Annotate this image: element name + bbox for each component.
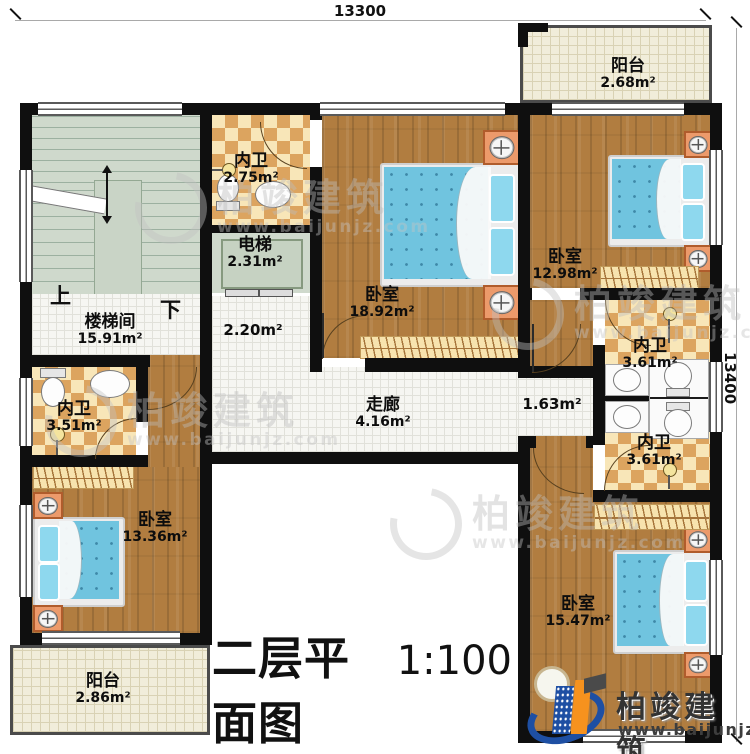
wall — [580, 288, 722, 300]
pillow — [684, 604, 708, 646]
dimension-tick — [730, 16, 742, 28]
light-fixture-stem — [668, 475, 670, 489]
window — [709, 560, 723, 655]
room-label-bath-left: 内卫3.51m² — [34, 400, 114, 435]
watermark-logo-icon — [376, 474, 476, 574]
nightstand — [483, 130, 520, 165]
wall — [205, 225, 310, 233]
dimension-right-value: 13400 — [721, 352, 739, 432]
wardrobe-rail — [34, 478, 133, 480]
dimension-tick — [9, 8, 21, 20]
lamp-icon — [689, 656, 708, 673]
room-label-stairwell: 楼梯间15.91m² — [60, 313, 160, 348]
pillow — [681, 163, 705, 201]
pillow — [489, 174, 515, 223]
wardrobe — [360, 336, 520, 359]
plan-scale: 1:100 — [397, 638, 512, 684]
nightstand — [684, 527, 712, 553]
title-block: 二层平面图 1:100 本层建筑面积: 117.86m² 层高: 3.2m — [212, 622, 512, 754]
sink — [613, 405, 641, 429]
wall — [593, 490, 710, 502]
brand-name: 柏竣建筑 — [616, 682, 750, 754]
sink — [90, 370, 130, 398]
sink-counter — [605, 401, 649, 433]
wall — [593, 345, 605, 395]
floor-plan: 13300 13400 — [0, 0, 750, 754]
wall — [200, 103, 212, 367]
room-label-balcony-top-right: 阳台2.68m² — [578, 57, 678, 92]
pillow — [38, 563, 60, 601]
wall — [518, 23, 528, 47]
wall — [200, 452, 530, 464]
wardrobe — [594, 504, 710, 530]
page-title: 二层平面图 — [212, 622, 385, 752]
lamp-icon — [38, 609, 58, 627]
dimension-top-value: 13300 — [300, 2, 420, 20]
wall — [365, 358, 518, 372]
nightstand — [684, 652, 712, 678]
lamp-icon — [689, 249, 708, 267]
bed-sheet — [456, 167, 491, 279]
nightstand — [33, 492, 63, 519]
door-leaf — [322, 313, 324, 358]
room-label-bedroom-bottom-left: 卧室13.36m² — [105, 511, 205, 546]
room-label-corridor: 走廊4.16m² — [333, 396, 433, 431]
nightstand — [483, 285, 520, 320]
wall — [518, 300, 530, 378]
bed-sheet — [659, 554, 684, 646]
room-label-bath-upper: 内卫2.75m² — [211, 152, 291, 187]
bed — [380, 163, 521, 287]
arrow-head-icon — [102, 165, 112, 173]
brand-logo: 柏竣建筑 www.baijunjz.com — [524, 676, 750, 748]
stair-flight — [140, 183, 200, 295]
pillow — [681, 203, 705, 241]
lamp-icon — [689, 531, 708, 548]
window — [320, 102, 505, 116]
wall — [530, 436, 536, 448]
room-label-bedroom-center: 卧室18.92m² — [332, 286, 432, 321]
window — [19, 170, 33, 282]
stair-direction-arrow — [106, 172, 108, 216]
arrow-head-icon — [102, 216, 112, 224]
wardrobe-rail — [595, 517, 709, 519]
window — [19, 505, 33, 597]
toilet-tank — [666, 388, 690, 397]
window — [709, 362, 723, 432]
pillow — [684, 560, 708, 602]
door-leaf — [532, 324, 534, 372]
pillow — [38, 525, 60, 563]
stair-up-label: 上 — [50, 280, 71, 310]
lamp-icon — [489, 291, 514, 315]
wall — [136, 367, 148, 422]
toilet-tank — [216, 201, 240, 211]
lamp-icon — [489, 136, 514, 160]
room-label-passage-nook: 1.63m² — [512, 396, 592, 413]
nightstand — [33, 605, 63, 632]
wall — [20, 355, 150, 367]
room-label-elevator: 电梯2.31m² — [215, 236, 295, 271]
bed — [608, 155, 712, 247]
pillow — [489, 227, 515, 276]
window — [42, 631, 180, 645]
window — [709, 150, 723, 245]
stair-down-label: 下 — [160, 294, 181, 324]
wardrobe-rail — [361, 348, 519, 350]
wall — [310, 167, 322, 372]
room-label-bedroom-top-right: 卧室12.98m² — [515, 248, 615, 283]
wall — [586, 436, 593, 448]
brand-url: www.baijunjz.com — [618, 720, 750, 739]
room-label-elevator-lobby: 2.20m² — [213, 322, 293, 339]
staircase — [32, 115, 200, 295]
nightstand — [684, 131, 712, 158]
room-label-bedroom-bottom-right: 卧室15.47m² — [528, 595, 628, 630]
room-label-bath-right-lower: 内卫3.61m² — [614, 434, 694, 469]
lamp-icon — [38, 496, 58, 514]
bed-sheet — [656, 159, 681, 239]
alcove-divider — [650, 397, 708, 399]
wall — [593, 405, 605, 445]
light-fixture-icon — [663, 307, 677, 321]
wardrobe — [33, 466, 134, 489]
elevator-door — [259, 289, 293, 297]
logo-flag-icon — [584, 673, 606, 693]
room-label-bath-right-upper: 内卫3.61m² — [610, 337, 690, 372]
dimension-tick — [699, 8, 711, 20]
window — [552, 102, 684, 116]
window — [19, 378, 33, 446]
wall — [200, 355, 212, 645]
elevator-door — [225, 289, 259, 297]
window — [38, 102, 182, 116]
dimension-line-top — [15, 20, 706, 21]
wardrobe-rail — [601, 278, 698, 280]
room-label-balcony-bottom-left: 阳台2.86m² — [53, 672, 153, 707]
bed — [613, 550, 714, 654]
stair-flight — [32, 115, 200, 183]
lamp-icon — [689, 135, 708, 153]
